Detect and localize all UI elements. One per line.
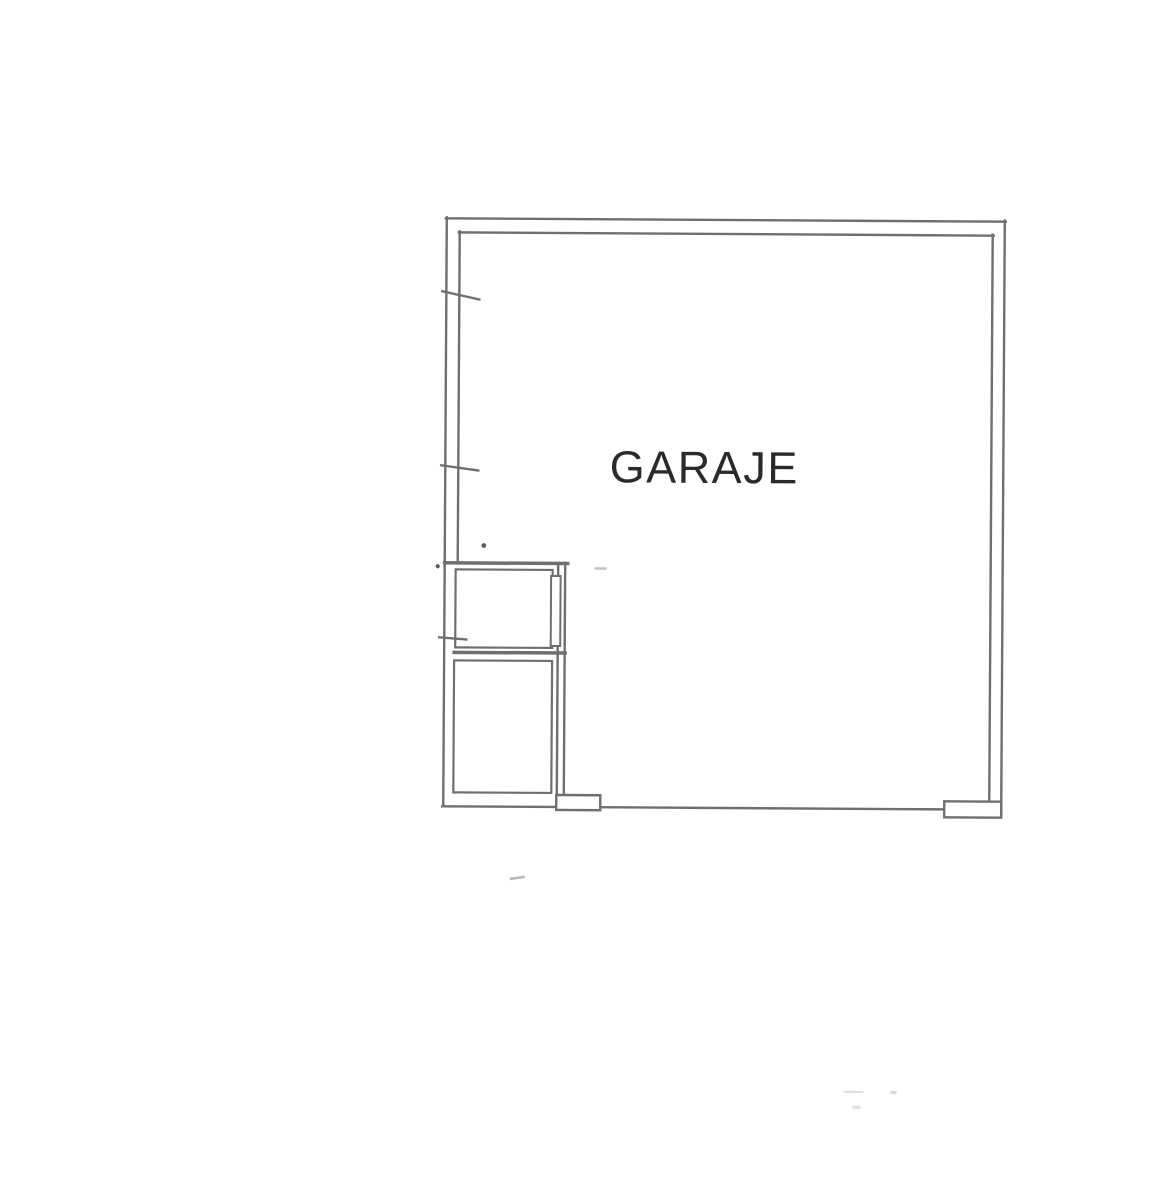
room-label-garaje: GARAJE [610,441,799,493]
top-outer-wall [446,218,1006,221]
right-outer-wall [1001,221,1005,814]
wall-tick-top [442,291,479,299]
floorplan-canvas: GARAJE [0,0,1155,1184]
storeroom-bottom [453,660,552,793]
speck-dash-2 [510,876,525,880]
bottom-jamb-right [944,801,1001,817]
speck-dot-1 [481,543,486,548]
wall-tick-middle [441,465,478,470]
annex-partition-outer-line [564,563,565,795]
inner-walls [455,231,993,802]
scan-specks [432,543,900,1109]
top-inner-wall [459,232,994,235]
bottom-jamb-left [556,795,600,810]
scanned-floorplan-page: GARAJE [0,0,1155,1184]
storeroom-door-leaf [551,576,561,646]
left-inner-wall [458,231,460,563]
floor-plan: GARAJE [432,217,1006,1109]
annex-structure [443,562,567,795]
speck-faint-2 [890,1091,896,1094]
speck-faint-3 [852,1106,860,1109]
annex-top-wall [445,563,568,564]
wall-linework [438,217,1006,817]
speck-faint-1 [843,1091,863,1093]
outer-walls [442,217,1006,813]
left-outer-wall [443,217,447,806]
bottom-wall [442,806,946,809]
annex-middle-wall [454,652,565,653]
storeroom-top [455,569,552,648]
speck-dash-1 [595,567,607,570]
speck-dot-2 [436,564,440,568]
right-inner-wall [989,235,992,803]
